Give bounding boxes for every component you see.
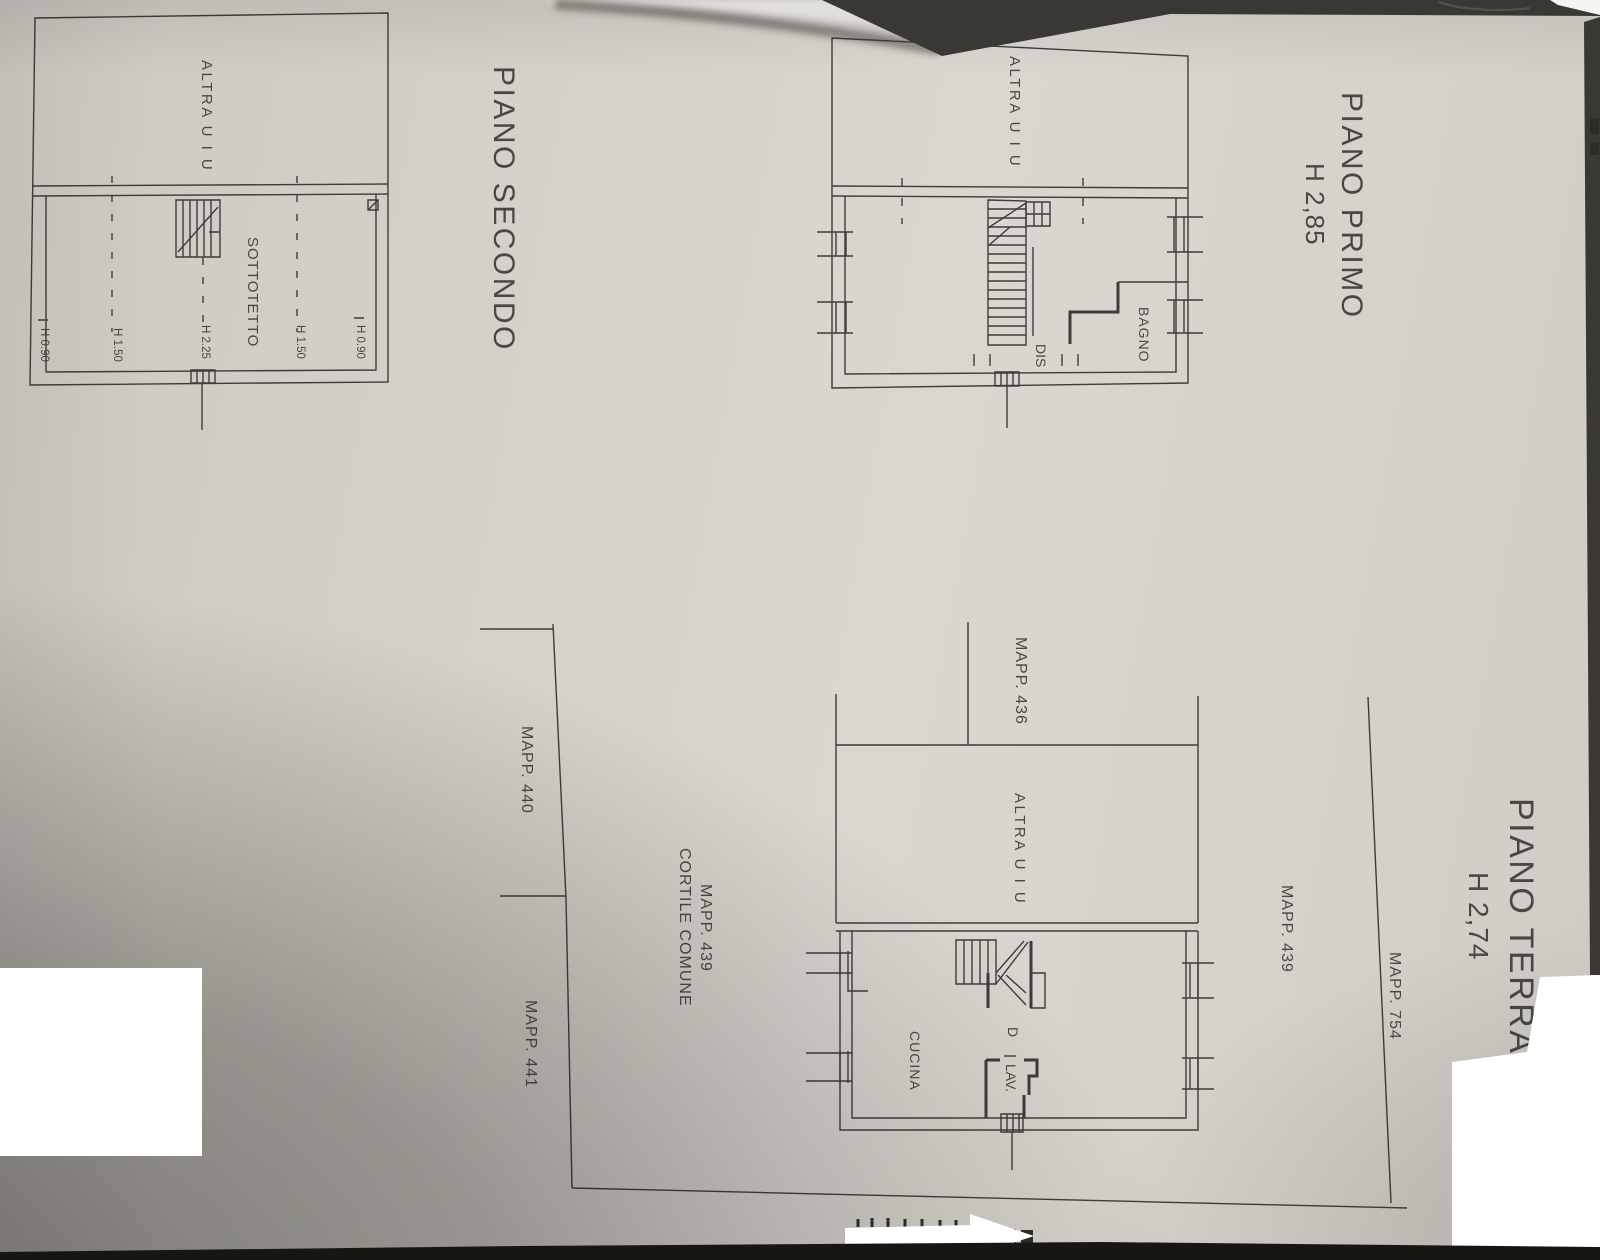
- floor-plan-photo: PIANO SECONDO ALTRA U I U SOTTOTETTO H 0…: [0, 0, 1600, 1260]
- redaction-bottom-left: [0, 968, 202, 1156]
- photo-bottom-edge: [0, 1242, 1600, 1260]
- redaction-bottom-right: [1452, 975, 1600, 1250]
- photo-artifacts: [0, 0, 1600, 1260]
- photo-top-edge: [822, 0, 1600, 56]
- photo-right-edge: [1584, 17, 1600, 975]
